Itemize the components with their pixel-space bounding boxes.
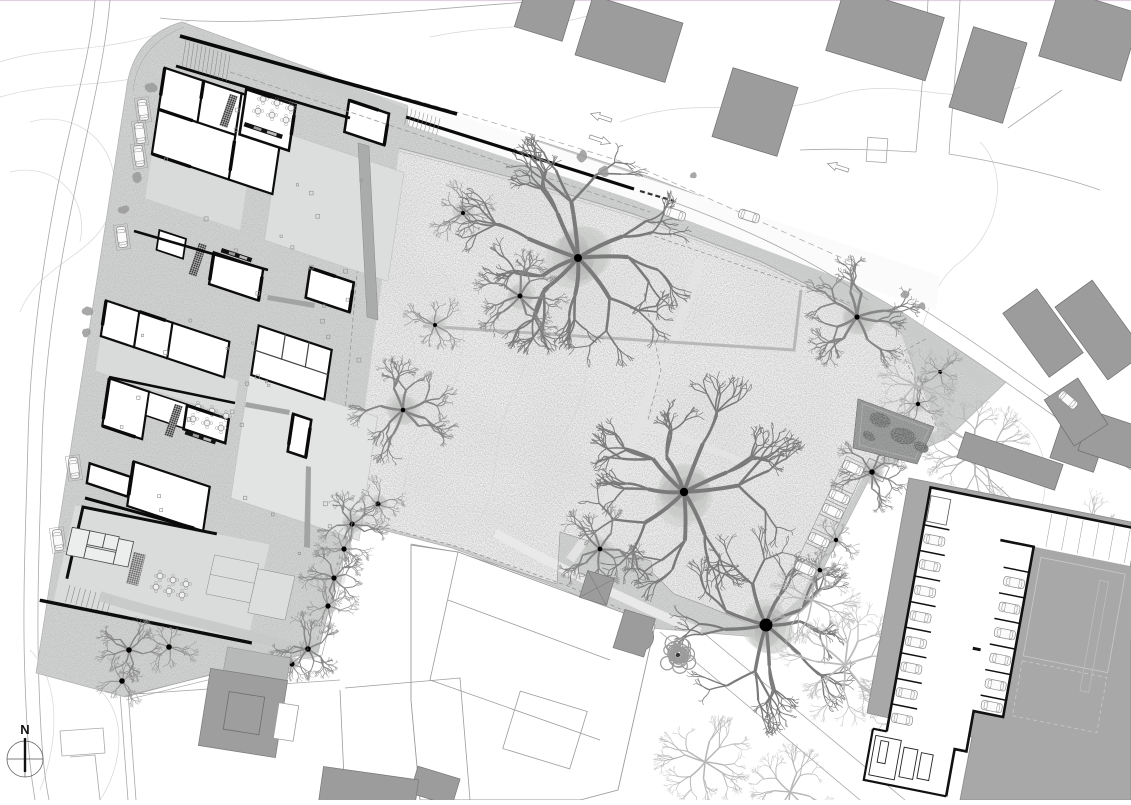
svg-text:N: N (20, 722, 29, 737)
